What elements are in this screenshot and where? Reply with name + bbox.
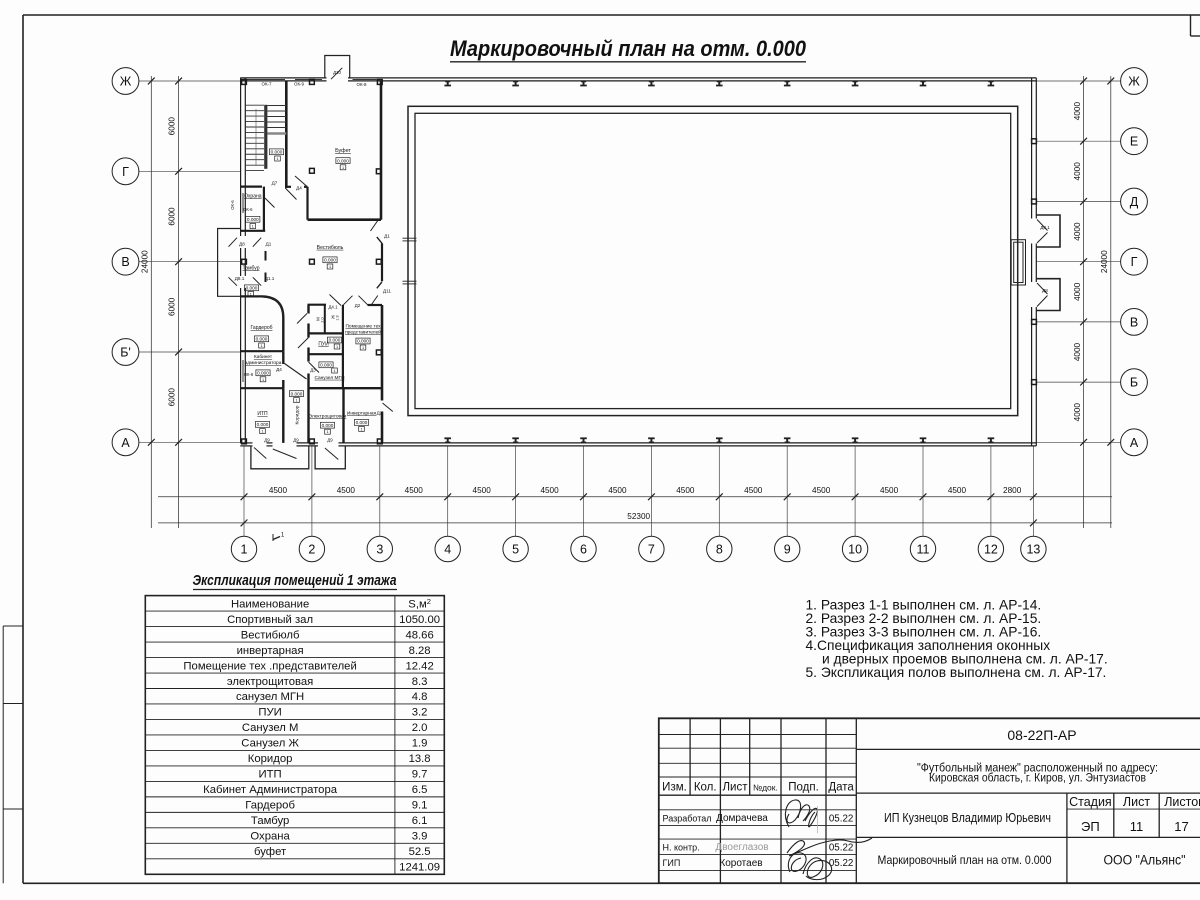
- svg-text:Подп.: Подп.: [788, 782, 819, 794]
- svg-text:Д4: Д4: [276, 367, 282, 372]
- svg-text:4500: 4500: [540, 486, 559, 495]
- svg-text:0.000: 0.000: [247, 217, 259, 222]
- svg-text:Гардероб: Гардероб: [245, 800, 295, 812]
- svg-text:1: 1: [262, 378, 264, 382]
- svg-text:1: 1: [362, 346, 364, 350]
- svg-text:48.66: 48.66: [405, 629, 433, 641]
- svg-text:10: 10: [848, 543, 862, 557]
- svg-text:2.0: 2.0: [412, 722, 428, 734]
- svg-text:Д8.1: Д8.1: [1040, 225, 1050, 230]
- svg-text:Домрачева: Домрачева: [716, 813, 768, 824]
- svg-text:1241.09: 1241.09: [399, 862, 440, 874]
- svg-text:05.22: 05.22: [829, 858, 854, 869]
- svg-text:ГИП: ГИП: [663, 858, 681, 868]
- svg-text:Б': Б': [120, 346, 131, 360]
- svg-text:0.000: 0.000: [329, 338, 341, 343]
- svg-text:3: 3: [376, 543, 383, 557]
- svg-text:1.9: 1.9: [336, 315, 340, 320]
- svg-text:ОК-6: ОК-6: [230, 200, 235, 210]
- svg-text:4500: 4500: [608, 486, 627, 495]
- svg-text:4000: 4000: [1073, 162, 1082, 181]
- svg-text:1: 1: [333, 369, 335, 373]
- svg-text:6000: 6000: [168, 117, 177, 136]
- svg-text:4500: 4500: [948, 486, 967, 495]
- svg-text:9.7: 9.7: [412, 769, 428, 781]
- svg-text:0.000: 0.000: [246, 286, 258, 291]
- svg-text:Гардероб: Гардероб: [251, 325, 273, 331]
- svg-text:ОК-8: ОК-8: [357, 82, 367, 87]
- svg-text:Д9: Д9: [327, 438, 333, 443]
- svg-text:6000: 6000: [168, 388, 177, 407]
- svg-text:администратора: администратора: [245, 361, 282, 366]
- svg-text:6000: 6000: [168, 297, 177, 316]
- svg-text:05.22: 05.22: [829, 813, 854, 824]
- svg-text:1: 1: [241, 543, 248, 557]
- svg-text:1.9: 1.9: [412, 738, 428, 750]
- svg-text:Маркировочный план на отм. 0.0: Маркировочный план на отм. 0.000: [450, 36, 806, 61]
- svg-text:ОК-9: ОК-9: [294, 82, 304, 87]
- svg-text:Лист: Лист: [1123, 795, 1150, 809]
- svg-text:Кабинет: Кабинет: [254, 354, 273, 360]
- svg-text:А: А: [1130, 436, 1139, 450]
- svg-text:52.5: 52.5: [409, 846, 431, 858]
- svg-text:Охрана: Охрана: [244, 194, 262, 200]
- svg-text:Электрощитовая: Электрощитовая: [309, 414, 347, 420]
- svg-text:6.1: 6.1: [412, 815, 428, 827]
- svg-text:ИТП: ИТП: [257, 411, 268, 417]
- svg-text:Кировская область, г. Киров, у: Кировская область, г. Киров, ул. Энтузиа…: [929, 771, 1146, 785]
- svg-text:0.000: 0.000: [356, 420, 368, 425]
- svg-text:Санузел М: Санузел М: [242, 722, 299, 734]
- svg-text:6: 6: [580, 543, 587, 557]
- svg-text:электрощитовая: электрощитовая: [227, 676, 313, 688]
- svg-text:0.000: 0.000: [271, 150, 283, 155]
- svg-text:Д10: Д10: [333, 70, 341, 75]
- svg-text:ОК-6: ОК-6: [244, 372, 254, 377]
- svg-text:ИП Кузнецов Владимир Юрьевич: ИП Кузнецов Владимир Юрьевич: [884, 810, 1051, 825]
- svg-text:Маркировочный план на отм. 0.0: Маркировочный план на отм. 0.000: [878, 853, 1052, 867]
- svg-text:24000: 24000: [141, 250, 150, 273]
- svg-text:В: В: [1130, 315, 1138, 329]
- svg-text:Разработал: Разработал: [663, 813, 712, 823]
- svg-text:1: 1: [326, 430, 328, 434]
- svg-text:Кол.: Кол.: [694, 782, 717, 794]
- svg-text:2800: 2800: [1003, 486, 1022, 495]
- svg-text:9.1: 9.1: [412, 800, 428, 812]
- svg-text:9: 9: [784, 543, 791, 557]
- svg-text:ОК-7: ОК-7: [262, 81, 272, 86]
- svg-text:Тамбур: Тамбур: [243, 265, 260, 271]
- svg-text:Экспликация помещений 1 этажа: Экспликация помещений 1 этажа: [193, 573, 397, 589]
- svg-text:Вестибюлб: Вестибюлб: [241, 629, 300, 641]
- svg-text:4500: 4500: [812, 486, 831, 495]
- svg-text:52300: 52300: [627, 512, 650, 521]
- svg-text:05.22: 05.22: [829, 843, 854, 854]
- svg-text:13.8: 13.8: [409, 753, 431, 765]
- svg-text:6000: 6000: [168, 207, 177, 226]
- svg-text:Тамбур: Тамбур: [251, 815, 289, 827]
- svg-text:Кабинет Администратора: Кабинет Администратора: [203, 784, 338, 796]
- svg-text:представителей: представителей: [345, 328, 381, 335]
- svg-text:1: 1: [261, 430, 263, 434]
- svg-text:11: 11: [917, 543, 930, 557]
- svg-text:Листов: Листов: [1164, 795, 1200, 809]
- svg-text:0.000: 0.000: [322, 423, 334, 428]
- svg-text:Д9: Д9: [293, 438, 299, 443]
- svg-text:0.000: 0.000: [357, 339, 369, 344]
- svg-text:13: 13: [1026, 543, 1040, 557]
- svg-text:Санузел Ж: Санузел Ж: [241, 738, 299, 750]
- svg-text:Д3: Д3: [310, 368, 316, 373]
- svg-text:8: 8: [716, 543, 723, 557]
- svg-text:Д1: Д1: [384, 234, 390, 239]
- svg-text:8.28: 8.28: [409, 645, 431, 657]
- svg-text:4000: 4000: [1073, 342, 1082, 361]
- svg-text:Лист: Лист: [723, 782, 749, 794]
- svg-text:8.3: 8.3: [412, 676, 428, 688]
- svg-text:буфет: буфет: [254, 846, 286, 858]
- svg-text:Помещение тех .представителей: Помещение тех .представителей: [183, 660, 356, 672]
- svg-text:Ж: Ж: [120, 75, 132, 89]
- svg-text:Коридор: Коридор: [248, 753, 293, 765]
- svg-text:24000: 24000: [1100, 250, 1109, 273]
- svg-text:Д: Д: [1130, 195, 1139, 209]
- svg-text:ИТП: ИТП: [259, 769, 282, 781]
- svg-text:Двоеглазов: Двоеглазов: [715, 842, 768, 853]
- svg-text:12.42: 12.42: [405, 660, 433, 672]
- svg-text:Помещение тех: Помещение тех: [345, 323, 381, 329]
- svg-text:4000: 4000: [1073, 282, 1082, 301]
- svg-text:А: А: [121, 436, 130, 450]
- svg-text:1: 1: [295, 399, 297, 403]
- svg-text:1: 1: [342, 166, 344, 170]
- svg-text:Стадия: Стадия: [1069, 795, 1112, 809]
- svg-text:Д1.1: Д1.1: [265, 276, 275, 281]
- svg-text:Дата: Дата: [828, 782, 854, 794]
- svg-text:Коридор: Коридор: [295, 405, 301, 424]
- svg-text:1: 1: [252, 225, 254, 229]
- svg-text:1: 1: [260, 344, 262, 348]
- svg-text:3.9: 3.9: [412, 831, 428, 843]
- svg-text:0.000: 0.000: [337, 158, 349, 163]
- svg-text:0.000: 0.000: [257, 422, 269, 427]
- svg-text:Д8: Д8: [1042, 288, 1048, 293]
- svg-text:4500: 4500: [269, 486, 288, 495]
- svg-text:Д7: Д7: [272, 181, 278, 186]
- svg-text:12: 12: [984, 543, 998, 557]
- svg-text:Г: Г: [122, 165, 129, 179]
- svg-text:0.000: 0.000: [256, 337, 268, 342]
- svg-text:3.2: 3.2: [412, 707, 428, 719]
- svg-text:17: 17: [1174, 819, 1188, 834]
- svg-text:4000: 4000: [1073, 102, 1082, 121]
- svg-text:Г: Г: [1131, 255, 1138, 269]
- svg-text:Инвертарная: Инвертарная: [347, 411, 377, 417]
- svg-text:5: 5: [512, 543, 519, 557]
- svg-text:7: 7: [648, 543, 655, 557]
- svg-text:4500: 4500: [744, 486, 763, 495]
- svg-text:В: В: [121, 255, 129, 269]
- svg-text:08-22П-АР: 08-22П-АР: [1007, 727, 1076, 743]
- svg-text:0.000: 0.000: [257, 371, 269, 376]
- svg-text:4: 4: [444, 543, 451, 557]
- svg-text:4000: 4000: [1073, 403, 1082, 422]
- svg-text:Н. контр.: Н. контр.: [663, 843, 700, 853]
- svg-text:Е: Е: [1130, 135, 1138, 149]
- svg-text:Охрана: Охрана: [250, 831, 290, 843]
- svg-text:4500: 4500: [337, 486, 356, 495]
- svg-text:Санузел МГН: Санузел МГН: [314, 375, 345, 381]
- svg-text:0.000: 0.000: [291, 391, 303, 396]
- svg-text:4500: 4500: [473, 486, 492, 495]
- svg-text:ООО "Альянс": ООО "Альянс": [1104, 853, 1186, 868]
- svg-text:2.0: 2.0: [321, 317, 325, 322]
- svg-text:0.000: 0.000: [324, 258, 336, 263]
- svg-text:санузел МГН: санузел МГН: [236, 691, 304, 703]
- svg-text:Спортивный зал: Спортивный зал: [227, 614, 313, 626]
- svg-text:ПУИ: ПУИ: [258, 707, 281, 719]
- svg-text:4000: 4000: [1073, 222, 1082, 241]
- svg-text:6.5: 6.5: [412, 784, 428, 796]
- svg-text:1: 1: [360, 427, 362, 431]
- svg-text:Д2: Д2: [355, 303, 361, 308]
- svg-text:Д4.1: Д4.1: [328, 305, 338, 310]
- svg-text:Изм.: Изм.: [662, 782, 687, 794]
- svg-text:2: 2: [308, 543, 315, 557]
- svg-text:№док.: №док.: [753, 783, 778, 793]
- svg-text:4500: 4500: [676, 486, 695, 495]
- svg-text:1050.00: 1050.00: [399, 614, 440, 626]
- svg-text:1: 1: [329, 265, 331, 269]
- svg-text:5. Экспликация полов выполнена: 5. Экспликация полов выполнена см. л. АР…: [806, 665, 1107, 680]
- svg-text:ЭП: ЭП: [1081, 819, 1100, 834]
- svg-text:Б: Б: [1130, 376, 1138, 390]
- svg-text:Ж: Ж: [1128, 75, 1140, 89]
- svg-text:Д9: Д9: [264, 438, 270, 443]
- svg-text:1: 1: [276, 157, 278, 161]
- svg-text:Д2: Д2: [377, 411, 383, 416]
- svg-text:4500: 4500: [880, 486, 899, 495]
- svg-text:0.000: 0.000: [320, 363, 332, 368]
- svg-text:1: 1: [336, 345, 338, 349]
- svg-text:4.8: 4.8: [412, 691, 428, 703]
- svg-text:Д8.1: Д8.1: [235, 276, 245, 281]
- svg-text:Буфет: Буфет: [335, 148, 351, 154]
- svg-text:Вестибюль: Вестибюль: [317, 245, 344, 251]
- svg-text:4500: 4500: [405, 486, 424, 495]
- svg-text:Д8: Д8: [239, 241, 245, 246]
- svg-text:ОК-6: ОК-6: [243, 207, 253, 212]
- svg-text:Д4: Д4: [296, 186, 302, 191]
- svg-text:Наименование: Наименование: [231, 598, 309, 610]
- svg-text:11: 11: [1130, 819, 1144, 834]
- svg-text:Д11: Д11: [383, 289, 391, 294]
- svg-text:Д1: Д1: [266, 241, 272, 246]
- svg-text:инвертарная: инвертарная: [237, 645, 304, 657]
- svg-text:Коротаев: Коротаев: [719, 858, 762, 869]
